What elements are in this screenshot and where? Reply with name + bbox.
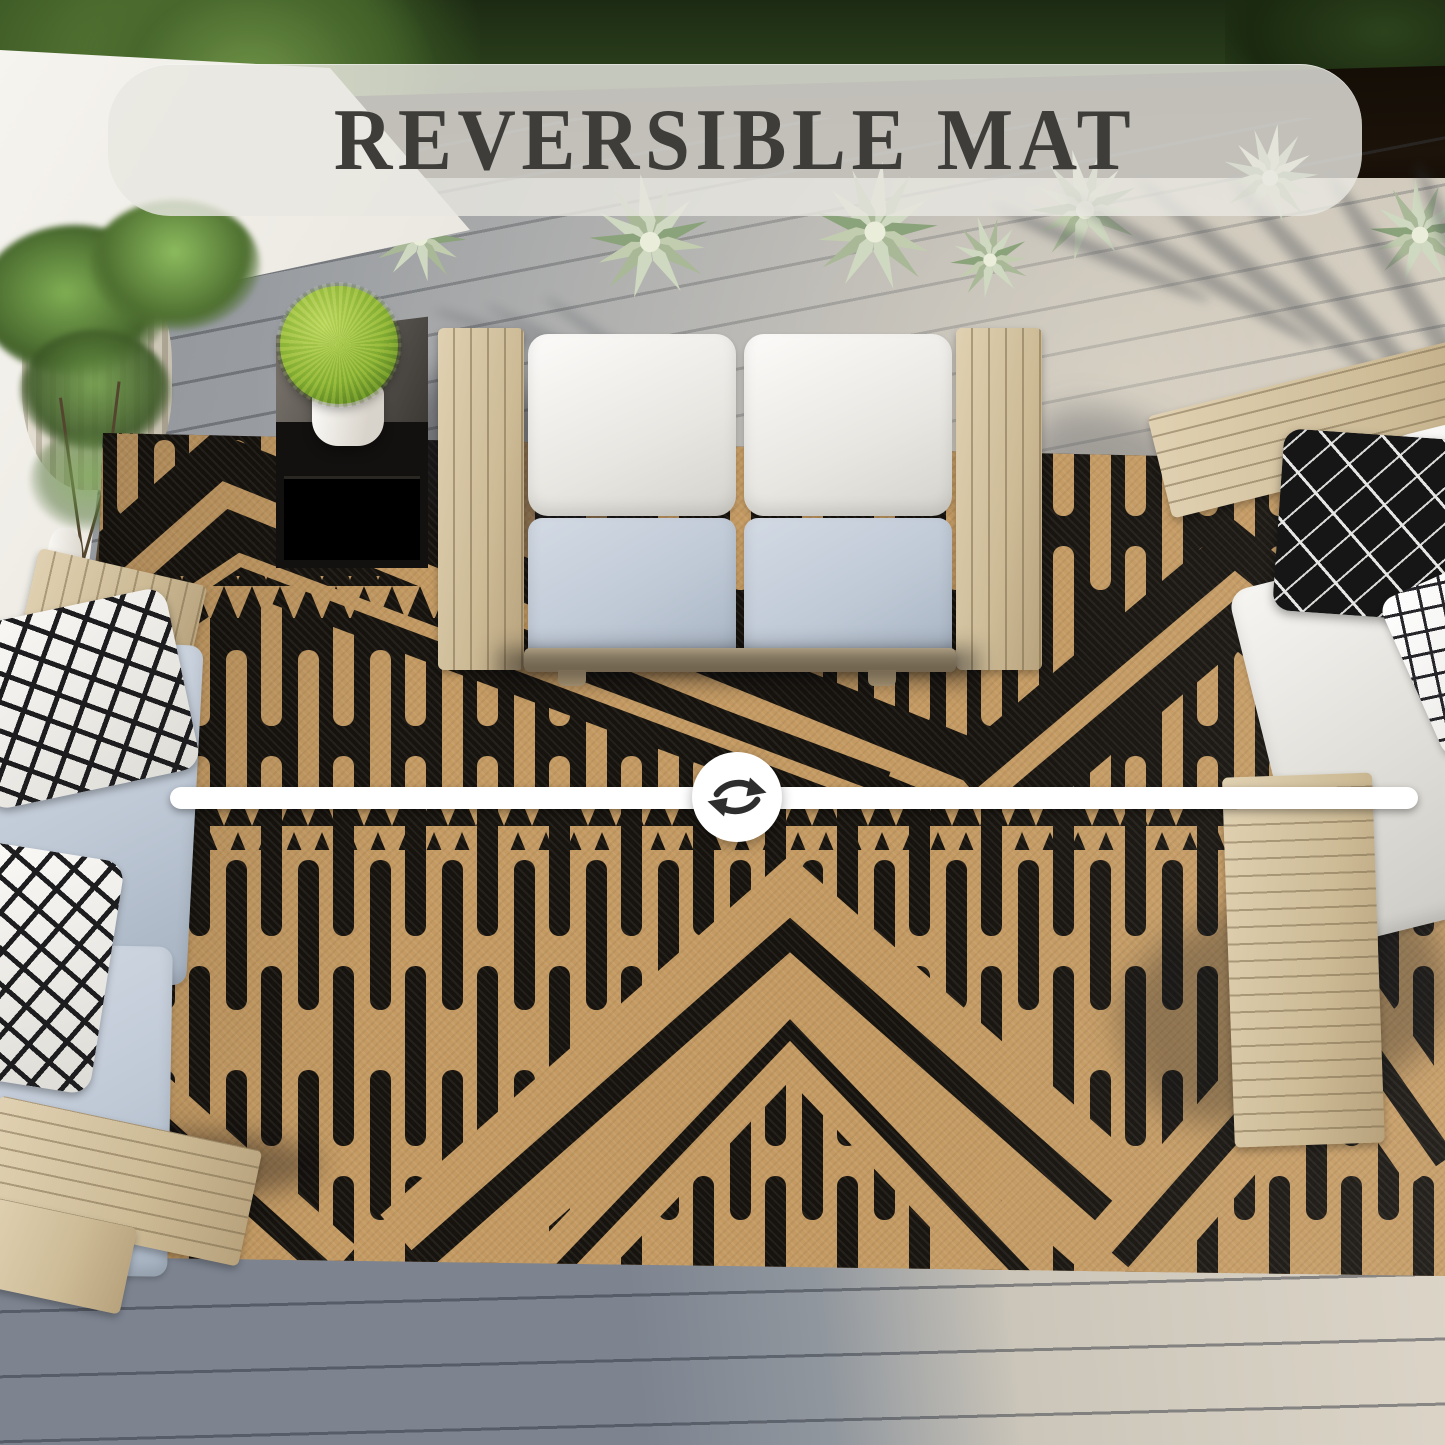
reversible-divider-bar (170, 787, 1418, 809)
loveseat-back-cushion (528, 334, 736, 516)
banner: REVERSIBLE MAT (108, 64, 1362, 216)
loveseat-leg (558, 670, 586, 686)
loveseat-arm-left (438, 328, 524, 670)
loveseat-back-cushion (744, 334, 952, 516)
swap-arrows-icon (692, 752, 782, 842)
loveseat-seat-cushion (744, 518, 952, 664)
loveseat-seat-cushion (528, 518, 736, 664)
moss-ball-plant (280, 286, 398, 404)
wooden-loveseat (438, 318, 1042, 678)
chair-arm-left (1222, 773, 1385, 1148)
loveseat-front-rail (524, 648, 956, 672)
potted-plant-foliage (90, 200, 260, 330)
loveseat-arm-right (956, 328, 1042, 670)
banner-title: REVERSIBLE MAT (158, 64, 1312, 216)
loveseat-leg (868, 670, 896, 686)
table-cavity (284, 476, 420, 560)
product-photo: REVERSIBLE MAT (0, 0, 1445, 1445)
